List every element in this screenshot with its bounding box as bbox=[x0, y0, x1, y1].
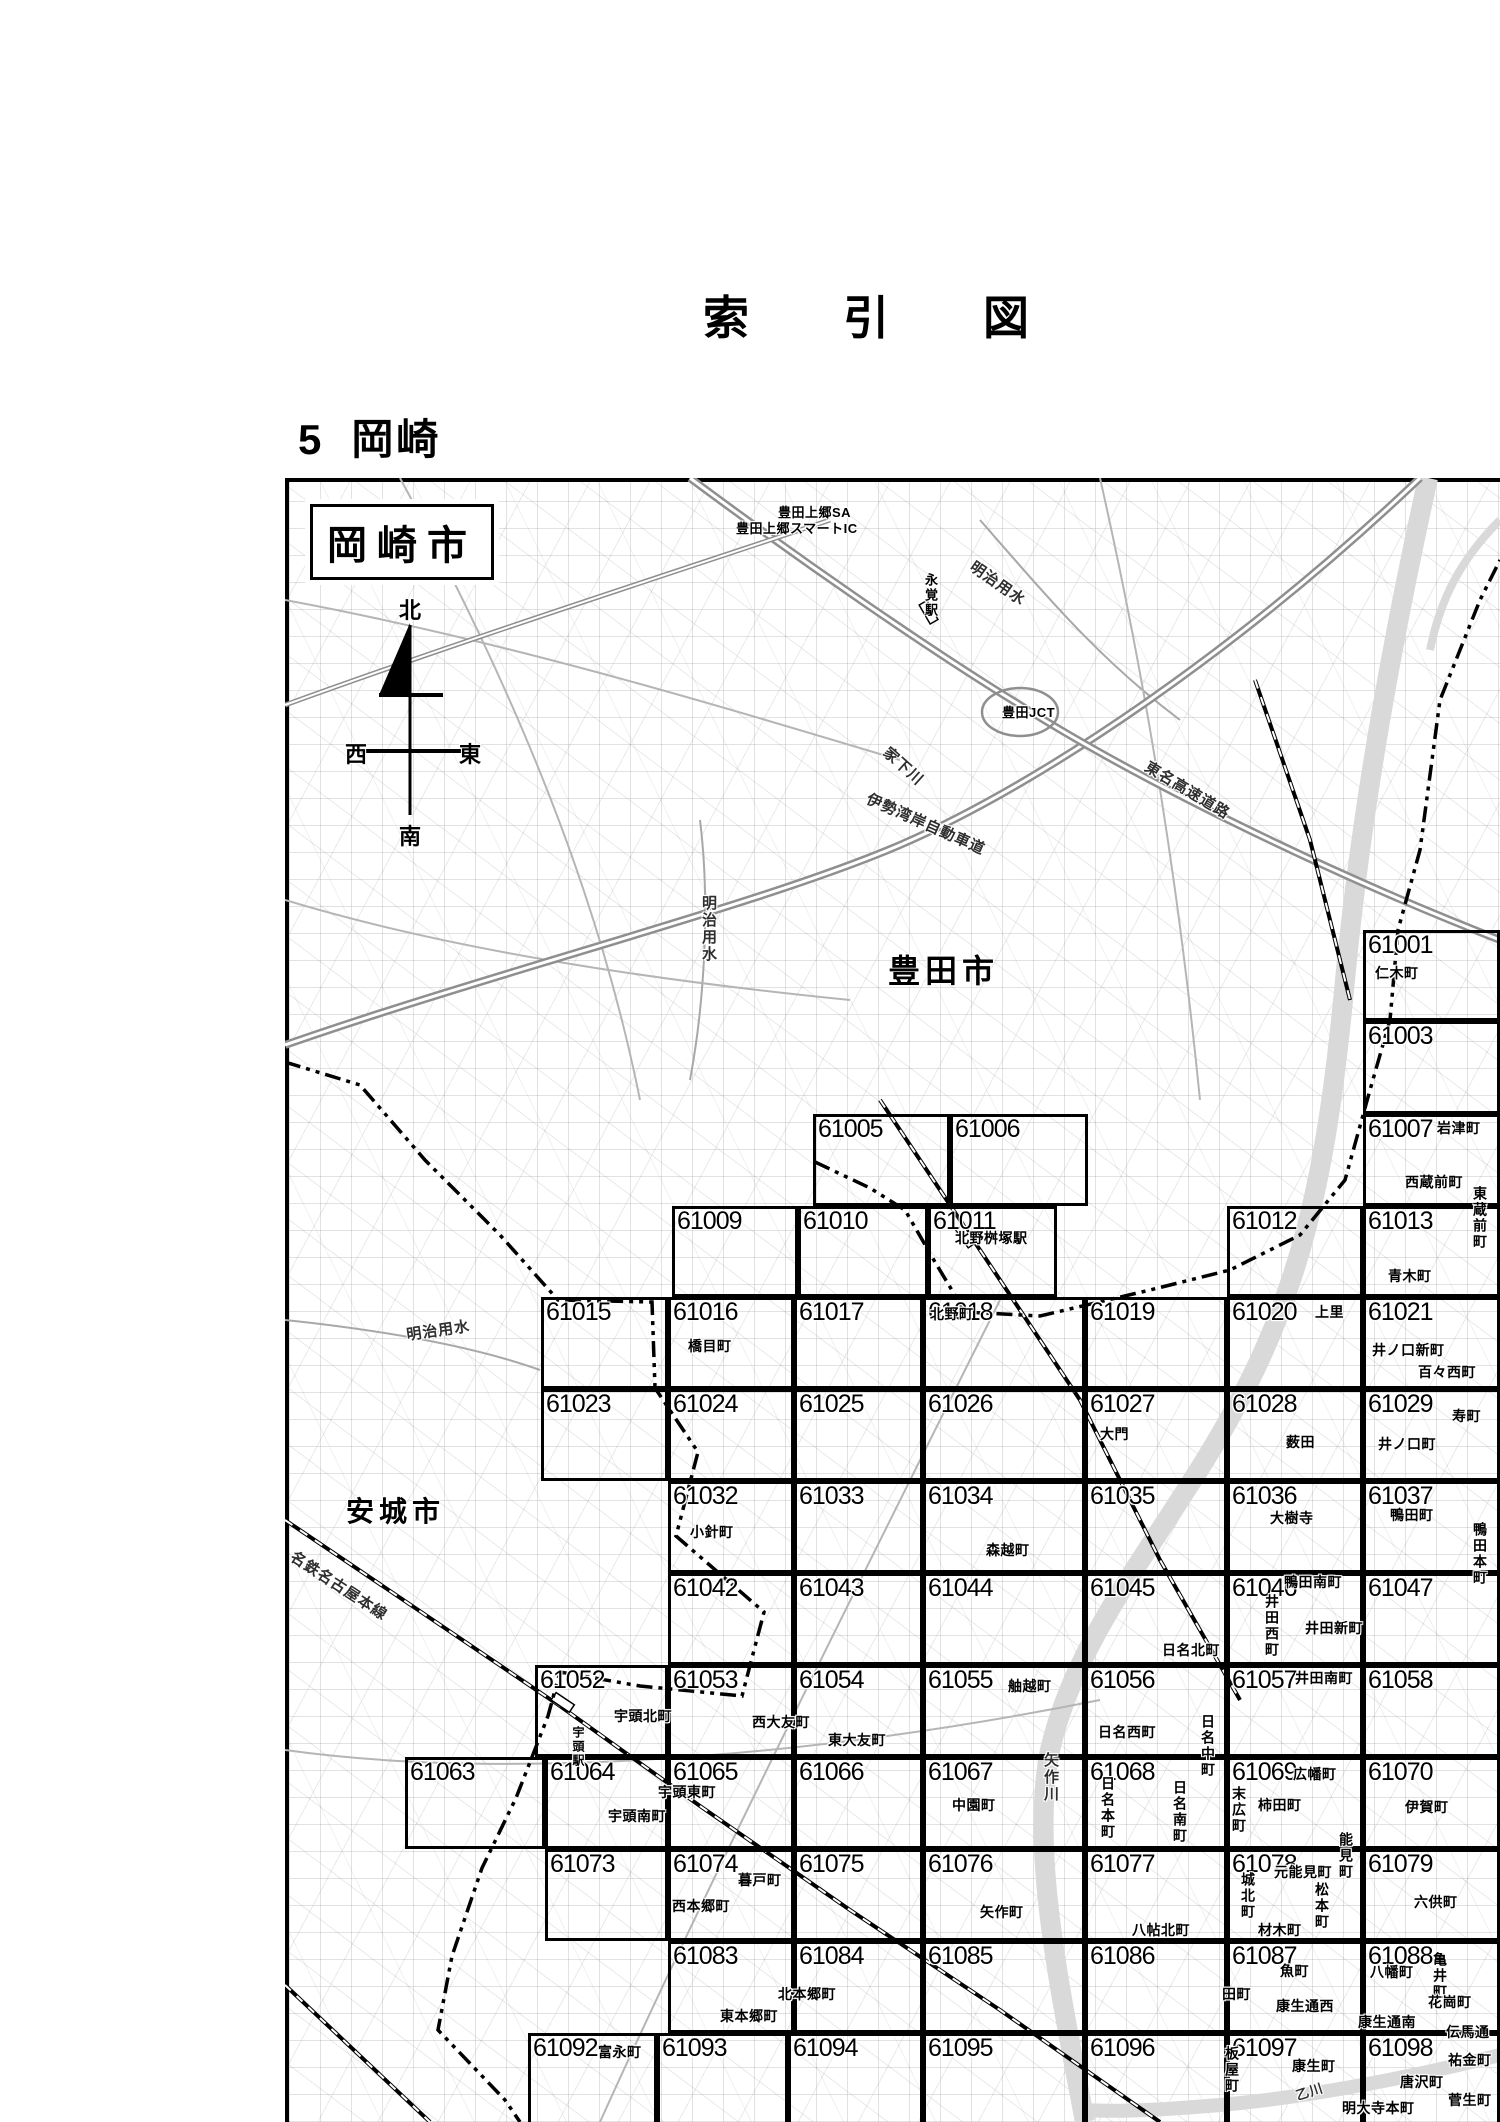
compass-south-label: 南 bbox=[399, 819, 421, 851]
section-name: 岡崎 bbox=[351, 406, 441, 467]
city-name-box-label: 岡崎市 bbox=[327, 524, 477, 568]
compass-east-label: 東 bbox=[459, 737, 481, 769]
compass-arrows bbox=[345, 593, 485, 845]
city-name-box: 岡崎市 bbox=[310, 504, 494, 580]
compass-north-label: 北 bbox=[399, 593, 421, 625]
page-title: 索 引 図 bbox=[703, 282, 1053, 348]
compass-rose: 北 南 西 東 bbox=[345, 593, 485, 845]
section-heading: 5 岡崎 bbox=[298, 406, 441, 467]
compass-west-label: 西 bbox=[345, 737, 367, 769]
index-map-page: 索 引 図 5 岡崎 bbox=[0, 0, 1500, 2122]
section-number: 5 bbox=[298, 416, 321, 464]
